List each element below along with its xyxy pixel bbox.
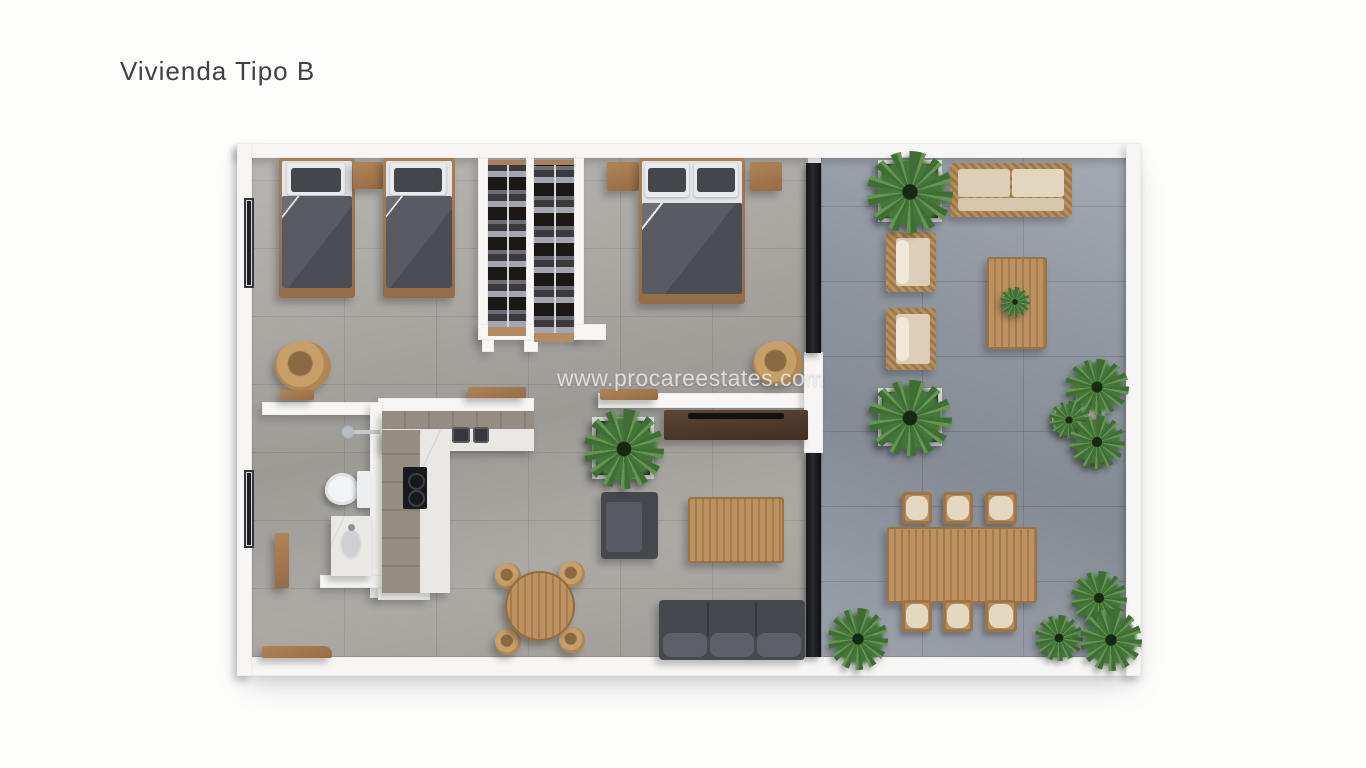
bathroom-window — [244, 470, 254, 548]
plant — [1069, 415, 1125, 469]
double-bed — [639, 158, 745, 304]
outdoor-dining-chair — [943, 492, 973, 524]
single-bed — [279, 158, 355, 298]
nightstand — [353, 162, 383, 189]
wall-shelf — [280, 390, 314, 400]
bedroom-window — [244, 198, 254, 288]
outdoor-dining-chair — [943, 600, 973, 632]
wall-right — [1126, 143, 1141, 676]
round-dining-table — [505, 571, 575, 641]
palm-plant — [1080, 609, 1142, 671]
bathroom-door-leaf — [275, 533, 289, 588]
rattan-chair — [275, 341, 331, 391]
outdoor-dining-chair — [902, 492, 932, 524]
outdoor-dining-table — [887, 527, 1037, 603]
sliding-glass-door-bedroom — [806, 163, 821, 353]
outdoor-armchair — [886, 232, 936, 292]
watermark: www.procareestates.com — [557, 365, 825, 392]
nightstand — [750, 162, 782, 191]
outdoor-dining-chair — [902, 600, 932, 632]
tv-console — [664, 410, 808, 440]
toilet — [325, 470, 373, 510]
shower-head — [340, 423, 380, 441]
nightstand — [607, 162, 639, 191]
outdoor-armchair — [886, 308, 936, 370]
sliding-glass-door-living — [806, 453, 821, 657]
closet-wall-left — [478, 158, 488, 340]
wardrobe-column — [488, 160, 526, 336]
closet-wall-right — [574, 158, 584, 340]
coffee-table — [688, 497, 784, 563]
closet-wall-mid — [526, 158, 534, 340]
plant — [867, 151, 953, 233]
bath-wall-bottom — [320, 575, 383, 588]
plant — [1035, 615, 1083, 661]
wardrobe-column — [534, 160, 574, 342]
sofa — [659, 600, 805, 660]
outdoor-dining-chair — [985, 492, 1017, 524]
armchair — [601, 492, 658, 559]
floor-plan: www.procareestates.com — [237, 143, 1141, 676]
bathroom-sink — [331, 516, 373, 576]
bench — [262, 646, 332, 658]
bath-wall-top — [262, 402, 382, 415]
kitchen-counter-side — [382, 430, 450, 593]
kitchen-wall — [378, 398, 534, 412]
single-bed — [383, 158, 455, 298]
plant — [868, 380, 952, 456]
page-title: Vivienda Tipo B — [120, 56, 315, 87]
outdoor-dining-chair — [985, 600, 1017, 632]
wall-top — [237, 143, 1141, 158]
palm-plant — [828, 608, 888, 670]
closet-wall-stub — [482, 340, 494, 352]
wall-shelf — [468, 387, 526, 398]
outdoor-sofa — [950, 163, 1072, 217]
plant — [584, 409, 664, 489]
plant — [1000, 287, 1030, 317]
